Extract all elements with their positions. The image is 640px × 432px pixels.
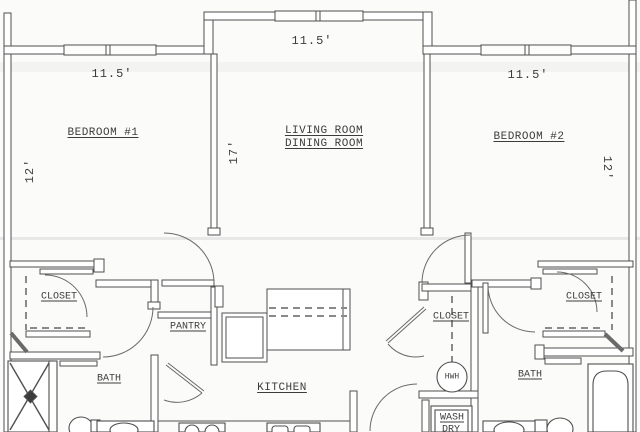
label-water-heater: HWH bbox=[445, 373, 459, 382]
bedroom1-door-arc bbox=[164, 233, 214, 283]
wall-kitchen-counter-east bbox=[343, 289, 350, 350]
label-washer: WASH bbox=[440, 413, 464, 424]
bath1-door-arc bbox=[103, 307, 153, 357]
bath2-door-arc bbox=[488, 285, 535, 332]
window-bedroom1 bbox=[64, 45, 156, 55]
room-label-living: LIVING ROOM bbox=[285, 125, 363, 137]
bathtub bbox=[588, 364, 633, 432]
bedroom1-door-leaf bbox=[162, 280, 214, 286]
wall-living-bedroom2 bbox=[424, 54, 430, 230]
closet2-shelf bbox=[543, 269, 597, 274]
shower bbox=[8, 361, 57, 432]
wall-cap bbox=[148, 302, 160, 309]
closet1-shelf bbox=[40, 269, 93, 274]
room-label-dining: DINING ROOM bbox=[285, 138, 363, 150]
wall-closet2-inner-bottom bbox=[543, 331, 605, 337]
pantry-door-arc bbox=[164, 393, 202, 402]
kitchen-fridge-inner bbox=[226, 317, 263, 358]
room-label-bedroom1: BEDROOM #1 bbox=[67, 127, 138, 139]
wall-ledge bbox=[60, 361, 97, 366]
kitchen-sink bbox=[267, 423, 320, 432]
windows bbox=[64, 11, 571, 55]
window-bedroom2 bbox=[481, 45, 571, 55]
hallcloset-door-leaf bbox=[386, 307, 424, 341]
pantry-door-leaf bbox=[168, 363, 204, 391]
wall-kitchen-east-lower bbox=[350, 391, 357, 432]
dim-living-depth: 17' bbox=[227, 140, 241, 165]
room-label-bedroom2: BEDROOM #2 bbox=[493, 131, 564, 143]
wall-cap bbox=[208, 228, 220, 235]
floor-plan: 11.5' BEDROOM #1 12' 11.5' LIVING ROOM D… bbox=[0, 0, 640, 432]
label-dryer: DRY bbox=[442, 425, 460, 432]
bathroom-sink bbox=[483, 421, 535, 432]
wall-closet1-bottom bbox=[10, 352, 100, 359]
dim-bedroom2-depth: 12' bbox=[600, 156, 614, 181]
wall-cap bbox=[535, 345, 544, 359]
wall-closet1-top bbox=[10, 261, 98, 267]
room-label-kitchen: KITCHEN bbox=[257, 382, 307, 394]
hallcloset-door-leaf bbox=[388, 309, 426, 343]
wall-bedroom2-bottom bbox=[472, 280, 536, 287]
room-label-closet-bedroom2: CLOSET bbox=[566, 292, 602, 303]
wall-bedroom1-living bbox=[211, 54, 217, 230]
wall-bedroom1-bottom bbox=[96, 280, 154, 287]
wall-laundry-west bbox=[422, 400, 429, 432]
room-label-bath-right: BATH bbox=[518, 370, 542, 381]
dim-bedroom1-width: 11.5' bbox=[91, 67, 132, 81]
window-living bbox=[275, 11, 363, 21]
room-label-closet-hall: CLOSET bbox=[433, 312, 469, 323]
scan-artifacts bbox=[0, 62, 640, 240]
pantry-door-leaf bbox=[166, 365, 202, 393]
dim-bedroom1-depth: 12' bbox=[23, 159, 37, 184]
wall-cap bbox=[421, 228, 433, 235]
toilet bbox=[535, 418, 573, 432]
bedroom2-door-leaf bbox=[465, 233, 471, 283]
bathroom-sink bbox=[97, 421, 154, 432]
wall-cap bbox=[94, 259, 104, 272]
kitchen-counter bbox=[267, 289, 343, 350]
toilet bbox=[69, 417, 100, 432]
kitchen-door-arc bbox=[370, 384, 417, 431]
wall-ledge bbox=[545, 358, 581, 364]
floor-plan-drawing bbox=[0, 0, 640, 432]
room-label-pantry: PANTRY bbox=[170, 322, 206, 333]
room-label-bath-left: BATH bbox=[97, 374, 121, 385]
bath2-door-leaf bbox=[483, 283, 488, 333]
wall-cap bbox=[531, 278, 541, 289]
dim-bedroom2-width: 11.5' bbox=[507, 68, 548, 82]
dim-living-width: 11.5' bbox=[291, 34, 332, 48]
wall-cap bbox=[215, 286, 223, 307]
wall-closet2-top bbox=[538, 261, 633, 267]
room-label-closet-bedroom1: CLOSET bbox=[41, 292, 77, 303]
hallcloset-door-arc bbox=[388, 344, 424, 357]
wall-closet1-inner-bottom bbox=[26, 331, 90, 337]
bedroom2-door-arc bbox=[422, 235, 470, 283]
wall-hallcloset-top bbox=[422, 284, 478, 291]
stove bbox=[158, 421, 350, 432]
wall-pantry-top bbox=[158, 312, 217, 318]
closet1-corner bbox=[11, 333, 27, 352]
